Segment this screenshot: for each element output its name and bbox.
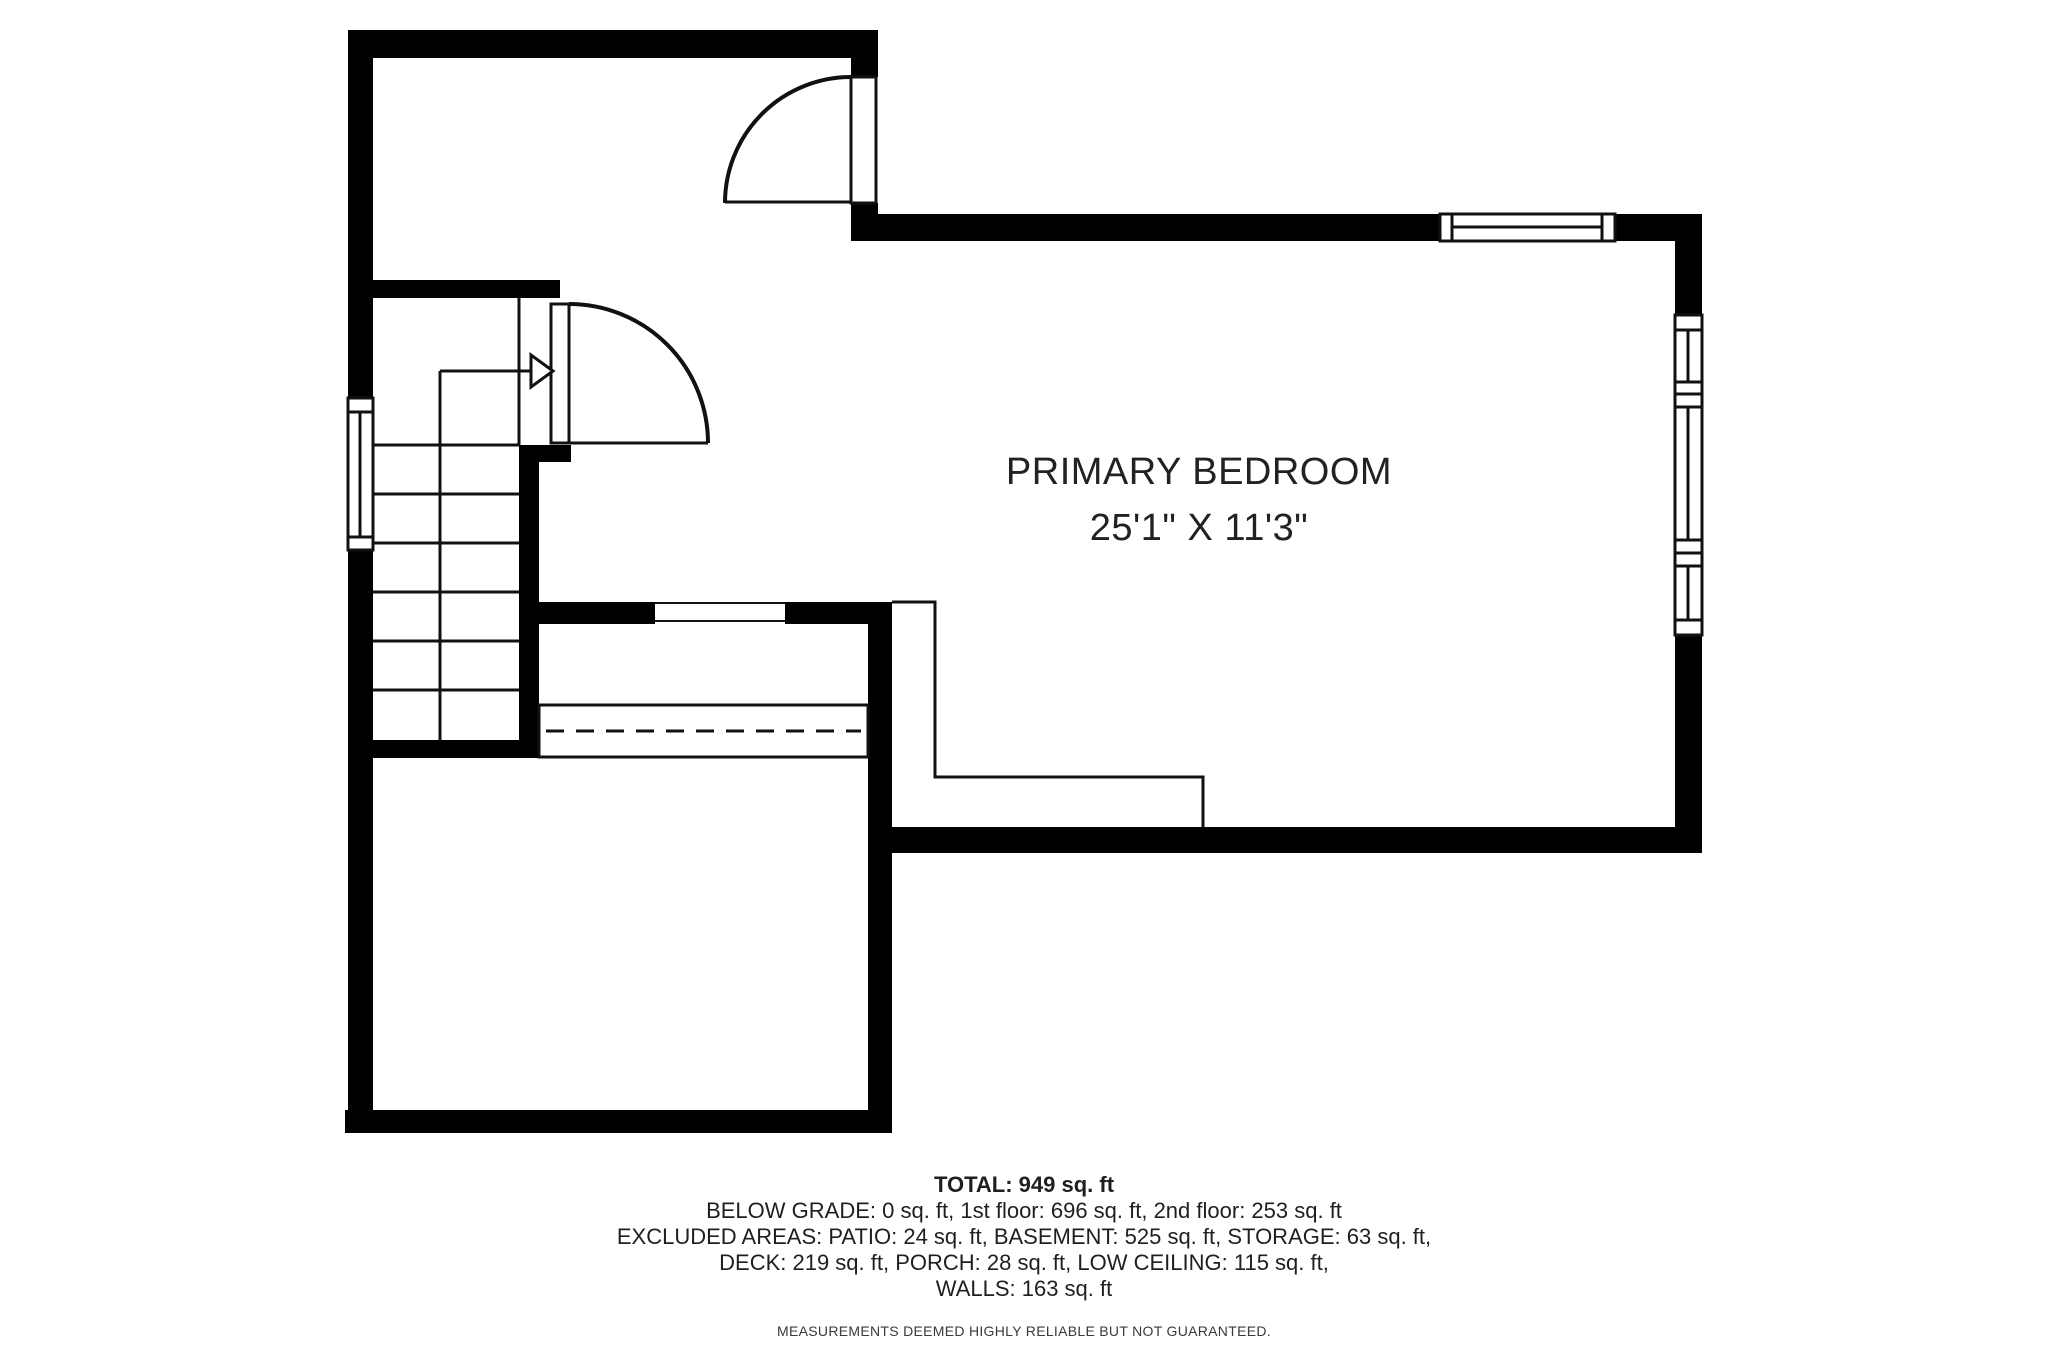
window-top — [1440, 214, 1615, 241]
wall-closet-top-left-segment — [539, 602, 655, 624]
exterior-walls — [345, 30, 1702, 1133]
low-ceiling-step-edge — [892, 602, 1203, 827]
room-name: PRIMARY BEDROOM — [1006, 444, 1392, 500]
wall-left-upper — [348, 30, 373, 398]
wall-bottom — [345, 1110, 892, 1133]
window-left — [348, 398, 373, 550]
room-label: PRIMARY BEDROOM 25'1" X 11'3" — [1006, 444, 1392, 556]
cased-opening — [655, 603, 785, 621]
interior-walls — [348, 280, 868, 758]
summary-disclaimer: MEASUREMENTS DEEMED HIGHLY RELIABLE BUT … — [0, 1318, 2048, 1344]
wall-landing-right-upper-stub — [851, 30, 878, 77]
floorplan-drawing — [0, 0, 2048, 1366]
wall-closet-top-right-segment — [785, 602, 868, 624]
wall-left-lower — [348, 550, 373, 1133]
summary-line: DECK: 219 sq. ft, PORCH: 28 sq. ft, LOW … — [0, 1250, 2048, 1276]
door-top-landing — [725, 77, 876, 203]
wall-right-upper — [1675, 214, 1702, 317]
wall-stair-door-bottom-stub — [519, 445, 571, 462]
wall-lower-room-right — [868, 602, 892, 1133]
wall-top-left-room-top — [348, 30, 878, 58]
wall-stair-bottom — [363, 740, 539, 758]
wall-stair-right — [519, 462, 539, 758]
summary-line: EXCLUDED AREAS: PATIO: 24 sq. ft, BASEME… — [0, 1224, 2048, 1250]
wall-bedroom-top-left-segment — [851, 214, 1440, 241]
summary-line: BELOW GRADE: 0 sq. ft, 1st floor: 696 sq… — [0, 1198, 2048, 1224]
area-summary: TOTAL: 949 sq. ft BELOW GRADE: 0 sq. ft,… — [0, 1172, 2048, 1344]
door-stair-hall — [551, 304, 708, 443]
window-right-stack — [1675, 315, 1702, 635]
wall-right-lower — [1675, 635, 1702, 853]
closet — [539, 705, 868, 757]
room-dimensions: 25'1" X 11'3" — [1006, 500, 1392, 556]
summary-line: WALLS: 163 sq. ft — [0, 1276, 2048, 1302]
wall-stair-top — [348, 280, 560, 298]
wall-bedroom-bottom — [868, 827, 1700, 853]
summary-total: TOTAL: 949 sq. ft — [0, 1172, 2048, 1198]
